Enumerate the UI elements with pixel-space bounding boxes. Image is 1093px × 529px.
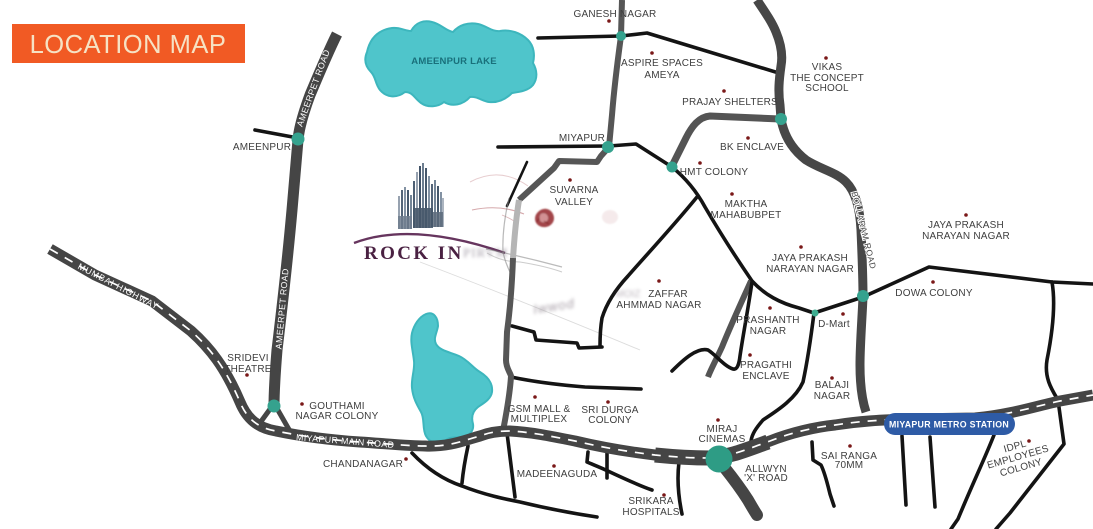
svg-text:AHMMAD NAGAR: AHMMAD NAGAR — [616, 300, 701, 311]
svg-text:AMEYA: AMEYA — [644, 70, 679, 81]
svg-text:ASPIRE SPACES: ASPIRE SPACES — [621, 58, 703, 69]
svg-text:PRASHANTH: PRASHANTH — [736, 315, 799, 326]
svg-text:BALAJI: BALAJI — [815, 380, 850, 391]
svg-text:ROCK IN: ROCK IN — [364, 243, 464, 264]
svg-text:CINEMAS: CINEMAS — [699, 434, 746, 445]
svg-text:D-Mart: D-Mart — [818, 319, 850, 330]
svg-text:SRIKARA: SRIKARA — [628, 496, 673, 507]
svg-text:MULTIPLEX: MULTIPLEX — [511, 414, 568, 425]
svg-text:NARAYAN NAGAR: NARAYAN NAGAR — [766, 264, 854, 275]
svg-text:DOWA COLONY: DOWA COLONY — [895, 288, 973, 299]
svg-text:NARAYAN NAGAR: NARAYAN NAGAR — [922, 231, 1010, 242]
svg-text:HOSPITALS: HOSPITALS — [622, 507, 679, 518]
svg-text:CHANDANAGAR: CHANDANAGAR — [323, 459, 403, 470]
svg-text:MIYAPUR: MIYAPUR — [559, 133, 605, 144]
svg-text:ZAFFAR: ZAFFAR — [648, 289, 688, 300]
svg-text:MADEENAGUDA: MADEENAGUDA — [517, 469, 598, 480]
svg-text:PRAJAY SHELTERS: PRAJAY SHELTERS — [682, 97, 778, 108]
svg-text:NAGAR: NAGAR — [814, 391, 851, 402]
svg-text:SCHOOL: SCHOOL — [805, 83, 849, 94]
svg-text:GANESH NAGAR: GANESH NAGAR — [574, 9, 657, 20]
svg-text:VIKAS: VIKAS — [812, 62, 843, 73]
svg-text:JAYA PRAKASH: JAYA PRAKASH — [928, 220, 1004, 231]
svg-text:COLONY: COLONY — [588, 415, 632, 426]
svg-text:NAGAR COLONY: NAGAR COLONY — [296, 411, 379, 422]
svg-text:SUVARNA: SUVARNA — [549, 185, 598, 196]
svg-text:NAGAR: NAGAR — [750, 326, 787, 337]
svg-text:HMT COLONY: HMT COLONY — [680, 167, 749, 178]
svg-text:70MM: 70MM — [835, 460, 864, 471]
svg-text:ENCLAVE: ENCLAVE — [742, 371, 789, 382]
svg-text:SRIDEVI: SRIDEVI — [227, 353, 268, 364]
svg-text:JAYA PRAKASH: JAYA PRAKASH — [772, 253, 848, 264]
svg-text:PRAGATHI: PRAGATHI — [740, 360, 792, 371]
svg-text:MAKTHA: MAKTHA — [725, 199, 768, 210]
svg-text:MIYAPUR METRO STATION: MIYAPUR METRO STATION — [889, 420, 1009, 430]
svg-text:VALLEY: VALLEY — [555, 197, 593, 208]
svg-text:BK ENCLAVE: BK ENCLAVE — [720, 142, 784, 153]
svg-text:THEATRE: THEATRE — [224, 364, 271, 375]
svg-text:PIRVM: PIRVM — [463, 245, 508, 260]
svg-text:LOCATION MAP: LOCATION MAP — [30, 31, 227, 59]
svg-text:AMEENPUR LAKE: AMEENPUR LAKE — [411, 56, 496, 67]
svg-text:AMEENPUR: AMEENPUR — [233, 142, 291, 153]
svg-text:MAHABUBPET: MAHABUBPET — [711, 210, 782, 221]
svg-text:'X' ROAD: 'X' ROAD — [744, 473, 788, 484]
svg-text:MOIZ: MOIZ — [616, 289, 641, 300]
